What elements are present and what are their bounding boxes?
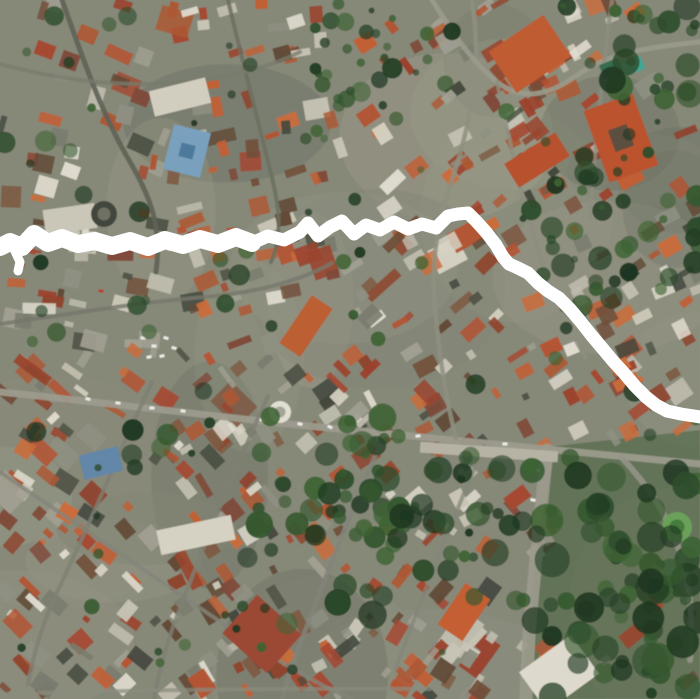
satellite-basemap	[0, 0, 700, 699]
satellite-map-view[interactable]	[0, 0, 700, 699]
